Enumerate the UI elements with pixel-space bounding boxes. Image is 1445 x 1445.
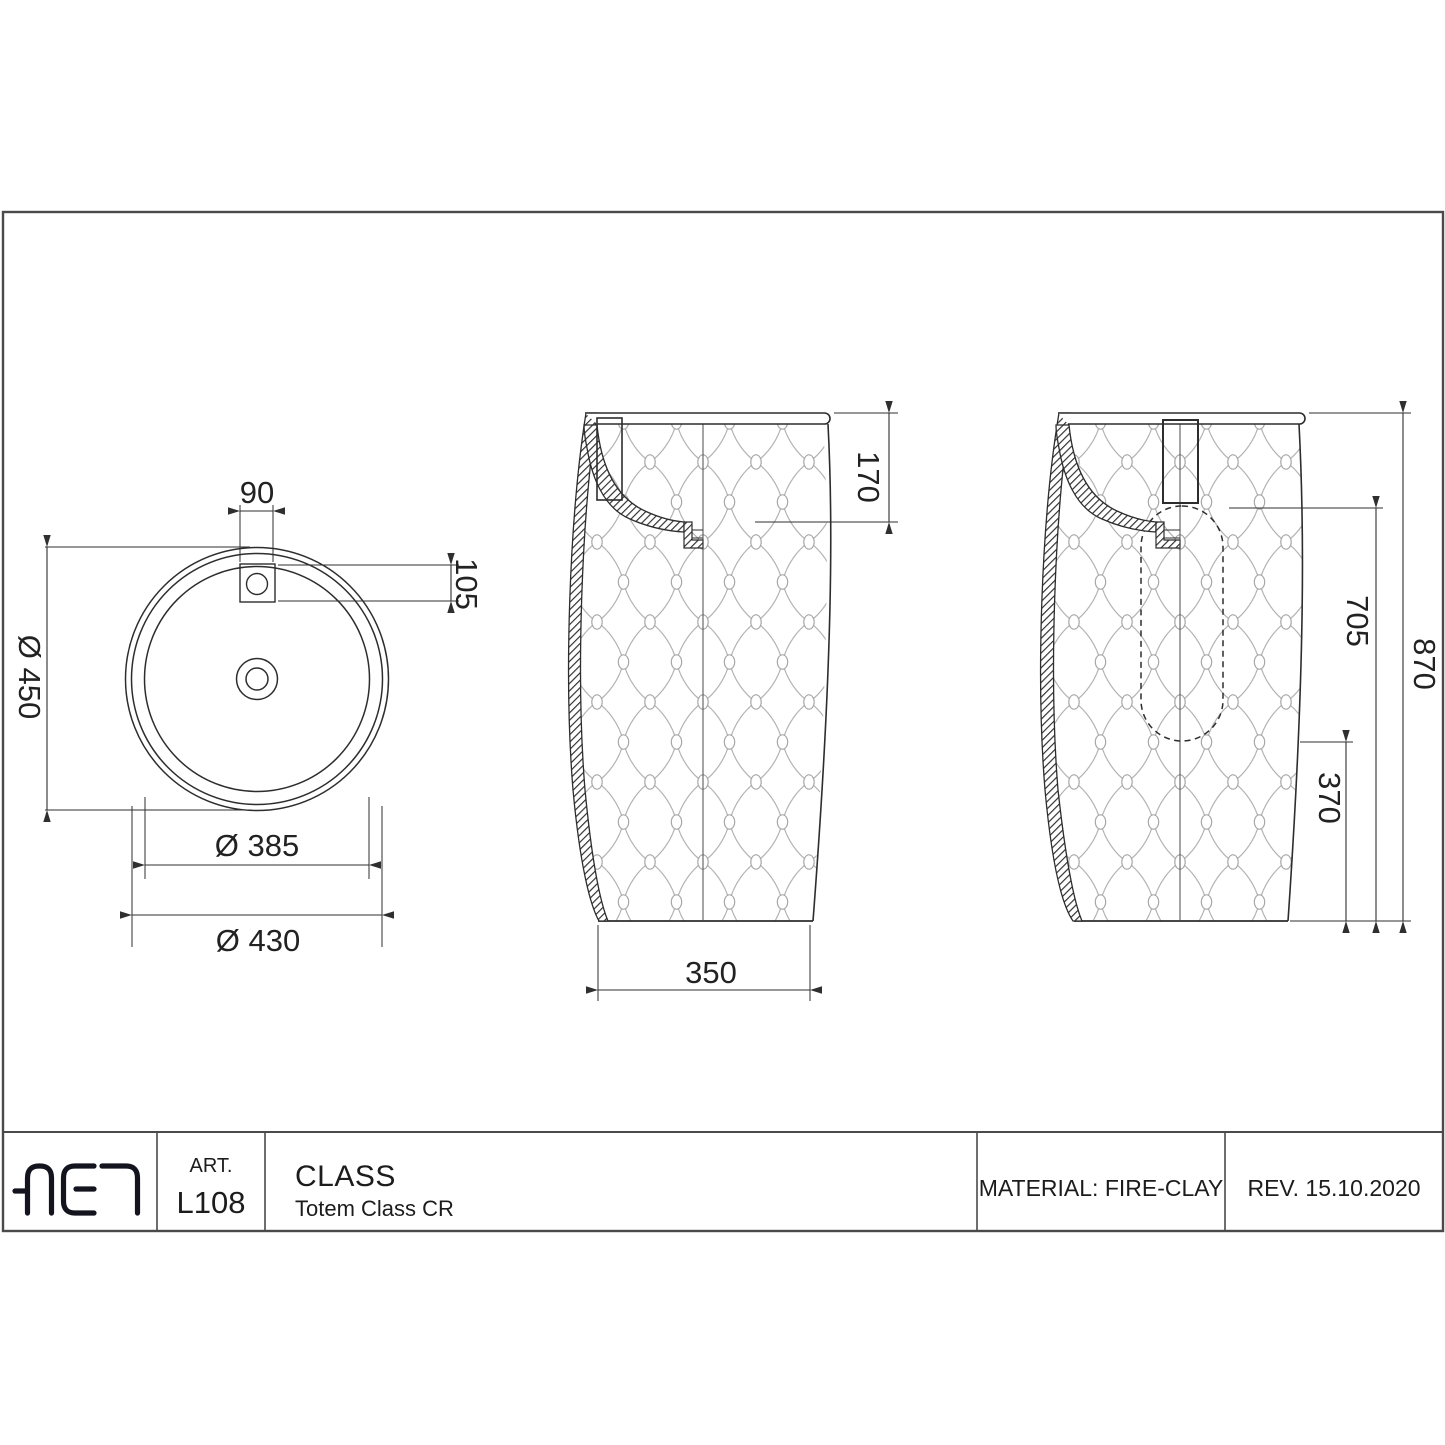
logo-letter-t	[102, 1166, 138, 1213]
basin-circle	[145, 567, 370, 792]
product-subtitle: Totem Class CR	[295, 1196, 454, 1221]
material-text: MATERIAL: FIRE-CLAY	[979, 1175, 1224, 1201]
logo-letter-e	[64, 1166, 95, 1213]
dim-hole-offset: 105	[449, 558, 484, 610]
body-circle	[132, 554, 383, 805]
drain-inner-circle	[246, 668, 268, 690]
art-value: L108	[177, 1185, 246, 1220]
dim-total-height: 870	[1407, 638, 1442, 690]
revision-text: REV. 15.10.2020	[1247, 1175, 1420, 1201]
logo-letter-a	[15, 1166, 52, 1213]
dim-inner-dia: Ø 385	[215, 828, 299, 863]
product-title: CLASS	[295, 1160, 396, 1193]
dim-basin-depth: 170	[851, 451, 886, 503]
dim-hole-width: 90	[240, 475, 274, 510]
technical-drawing: 90 105 Ø 450 Ø 385 Ø 430 170 350	[0, 0, 1445, 1445]
tap-hole	[247, 574, 268, 595]
title-block: AET ART. L108 CLASS Totem Class CR MATER…	[3, 1132, 1443, 1231]
top-view	[126, 548, 389, 811]
aet-logo: AET	[15, 1166, 138, 1213]
dim-lower-height: 370	[1312, 772, 1347, 824]
dim-base-width: 350	[685, 955, 737, 990]
outer-rim-circle	[126, 548, 389, 811]
top-view-dimensions	[45, 505, 459, 947]
drain-outer-circle	[237, 659, 278, 700]
dim-body-dia: Ø 430	[216, 923, 300, 958]
dim-outer-dia: Ø 450	[12, 635, 47, 719]
art-label: ART.	[190, 1155, 233, 1177]
drawing-sheet: 90 105 Ø 450 Ø 385 Ø 430 170 350	[0, 0, 1445, 1445]
side-view: 705 870 370	[1041, 413, 1442, 921]
tap-deck	[240, 564, 275, 602]
dim-upper-height: 705	[1340, 595, 1375, 647]
side-rim	[1058, 413, 1305, 424]
front-view: 170 350	[569, 413, 898, 1001]
